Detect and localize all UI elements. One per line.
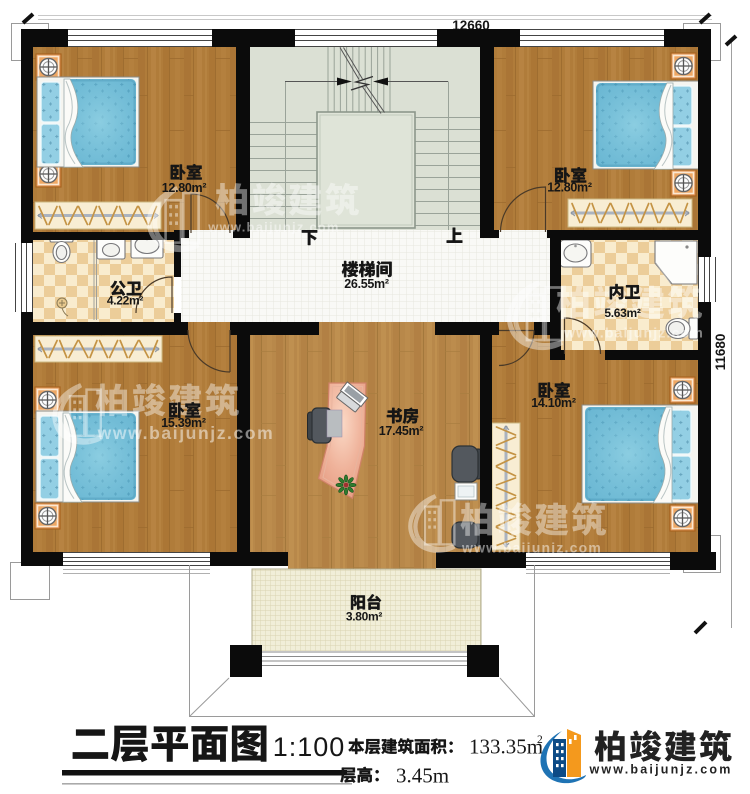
svg-text:www.baijunjz.com: www.baijunjz.com xyxy=(207,220,339,235)
svg-text:3.80m²: 3.80m² xyxy=(346,610,383,624)
svg-text:133.35m: 133.35m xyxy=(469,735,543,759)
svg-text:www.baijunjz.com: www.baijunjz.com xyxy=(588,763,732,777)
svg-text:4.22m²: 4.22m² xyxy=(107,294,144,308)
svg-text:15.39m²: 15.39m² xyxy=(161,416,206,430)
svg-text:3.45m: 3.45m xyxy=(396,764,449,788)
svg-text:12.80m²: 12.80m² xyxy=(547,181,592,195)
svg-text:26.55m²: 26.55m² xyxy=(344,277,389,291)
svg-text:12.80m²: 12.80m² xyxy=(162,181,207,195)
svg-text:5.63m²: 5.63m² xyxy=(604,306,641,320)
svg-text:2: 2 xyxy=(537,734,543,746)
svg-text:14.10m²: 14.10m² xyxy=(531,396,576,410)
svg-text:17.45m²: 17.45m² xyxy=(379,424,424,438)
svg-text:11680: 11680 xyxy=(713,334,728,371)
svg-text:www.baijunjz.com: www.baijunjz.com xyxy=(461,540,602,556)
svg-text:1:100: 1:100 xyxy=(273,732,346,762)
svg-text:www.baijunjz.com: www.baijunjz.com xyxy=(563,325,704,341)
